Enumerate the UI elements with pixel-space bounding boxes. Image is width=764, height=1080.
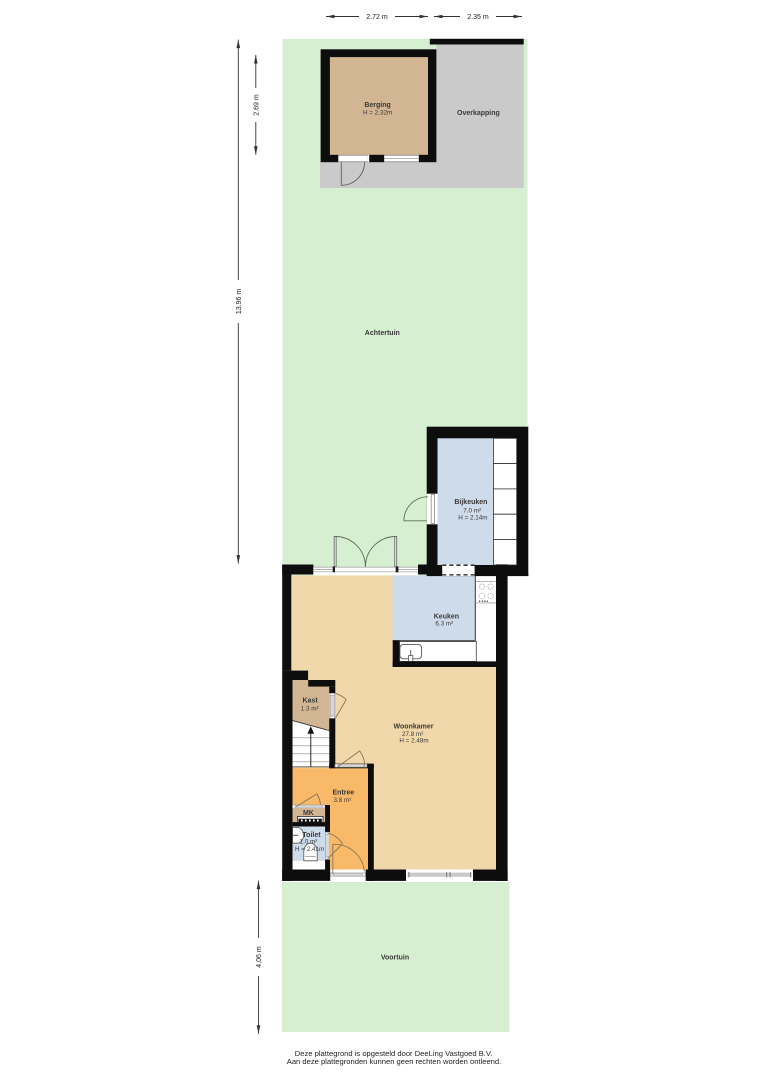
svg-text:2.35 m: 2.35 m: [467, 14, 489, 21]
svg-text:7.0 m²: 7.0 m²: [463, 507, 481, 514]
svg-text:Aan deze plattegronden kunnen: Aan deze plattegronden kunnen geen recht…: [287, 1057, 501, 1066]
svg-text:H = 2.14m: H = 2.14m: [458, 515, 487, 522]
svg-text:1.3 m²: 1.3 m²: [301, 706, 319, 713]
svg-text:Voortuin: Voortuin: [381, 954, 409, 961]
svg-text:Woonkamer: Woonkamer: [394, 724, 434, 731]
svg-text:3.8 m²: 3.8 m²: [333, 797, 351, 804]
svg-text:Overkapping: Overkapping: [457, 110, 500, 117]
svg-text:6.3 m²: 6.3 m²: [435, 621, 453, 628]
svg-text:H = 2.41m: H = 2.41m: [295, 846, 324, 853]
svg-text:Bijkeuken: Bijkeuken: [454, 499, 487, 506]
svg-text:MK: MK: [303, 810, 314, 817]
svg-text:Kast: Kast: [303, 698, 319, 705]
svg-text:Entree: Entree: [333, 790, 355, 797]
svg-text:2.72 m: 2.72 m: [366, 14, 388, 21]
svg-text:Berging: Berging: [364, 102, 390, 109]
svg-text:Achtertuin: Achtertuin: [365, 330, 400, 337]
svg-text:H = 2.48m: H = 2.48m: [399, 737, 428, 744]
svg-text:4,06 m: 4,06 m: [256, 946, 263, 968]
svg-text:H = 2.32m: H = 2.32m: [363, 109, 392, 116]
svg-text:1.0 m²: 1.0 m²: [299, 838, 317, 845]
svg-text:13.96 m: 13.96 m: [236, 289, 243, 314]
svg-text:2.69 m: 2.69 m: [253, 94, 260, 116]
